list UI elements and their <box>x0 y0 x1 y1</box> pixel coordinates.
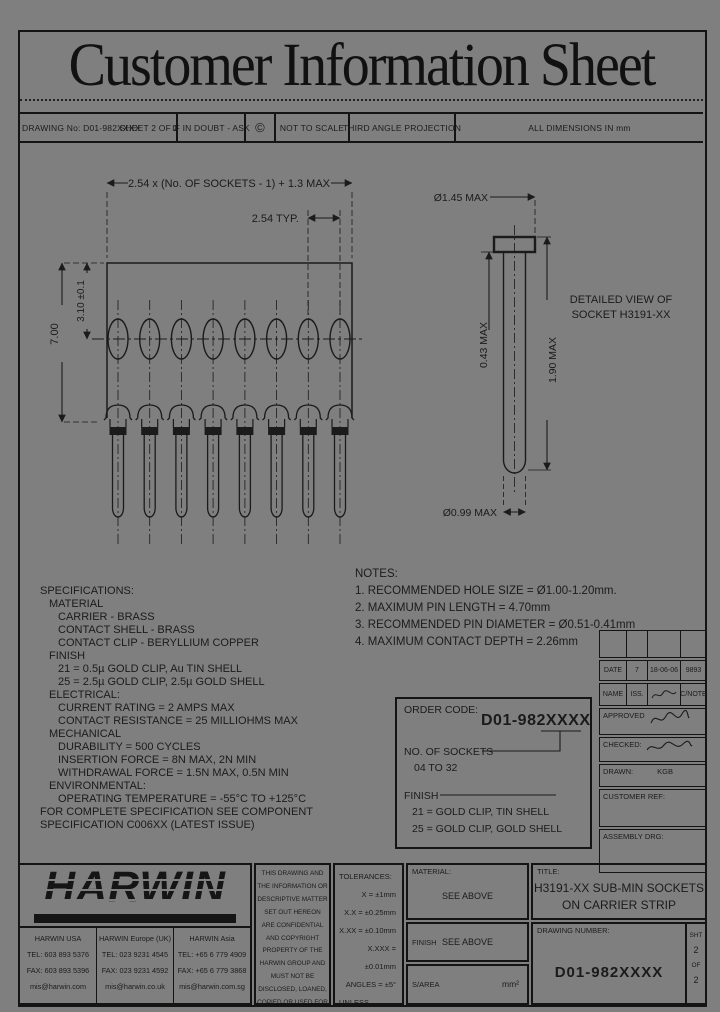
customer-ref-label: CUSTOMER REF: <box>600 790 668 803</box>
spec-line: INSERTION FORCE = 8N MAX, 2N MIN <box>40 754 370 767</box>
surface-area-box: S/AREA mm² <box>406 964 529 1005</box>
carrier-strip-view <box>92 263 362 418</box>
detail-dia-top-label: Ø1.45 MAX <box>434 192 488 204</box>
drawing-title-line2: ON CARRIER STRIP <box>533 898 705 912</box>
tolerance-line: X.XXX = ±0.01mm <box>339 940 398 976</box>
spec-line: CONTACT RESISTANCE = 25 MILLIOHMS MAX <box>40 715 370 728</box>
note-item: 1. RECOMMENDED HOLE SIZE = Ø1.00-1.20mm. <box>355 583 690 600</box>
finish-option: 25 = GOLD CLIP, GOLD SHELL <box>412 823 562 835</box>
tolerance-line: X.XX = ±0.10mm <box>339 922 398 940</box>
title-block: HARWIN HARWIN USA TEL: 603 893 5376 FAX:… <box>18 863 707 1005</box>
sht-label: SHT <box>687 928 705 943</box>
revision-date-row: DATE 7 18-06-06 9893 <box>599 660 707 681</box>
sockets-range: 04 TO 32 <box>414 762 457 774</box>
detail-caption-line1: DETAILED VIEW OF <box>570 294 673 306</box>
revision-empty-row <box>599 630 707 658</box>
drawn-row: DRAWN: KGB <box>599 764 707 787</box>
contact-asia: HARWIN Asia TEL: +65 6 779 4909 FAX: +65… <box>173 928 250 1005</box>
order-code-label: ORDER CODE: <box>404 704 478 716</box>
spec-line: CONTACT CLIP - BERYLLIUM COPPER <box>40 637 370 650</box>
notes-title: NOTES: <box>355 566 690 583</box>
office-email: mis@harwin.com.sg <box>174 979 250 995</box>
note-item: 2. MAXIMUM PIN LENGTH = 4.70mm <box>355 600 690 617</box>
tolerances-title: TOLERANCES: <box>339 868 398 886</box>
approved-label: APPROVED <box>600 709 648 734</box>
sarea-units: mm² <box>502 979 519 989</box>
drawn-label: DRAWN: <box>600 765 636 786</box>
spec-line: CARRIER - BRASS <box>40 611 370 624</box>
detail-caption-line2: SOCKET H3191-XX <box>572 309 672 321</box>
drawing-number-box: DRAWING NUMBER: D01-982XXXX SHT 2 OF 2 <box>531 922 707 1005</box>
change-note-number: 9893 <box>681 661 706 680</box>
spec-line: SPECIFICATION C006XX (LATEST ISSUE) <box>40 819 370 832</box>
issue-number: 7 <box>627 661 648 680</box>
contact-columns: HARWIN USA TEL: 603 893 5376 FAX: 603 89… <box>20 926 250 1005</box>
dim-hole-depth-label: 3.10 ±0.1 <box>76 280 87 322</box>
office-name: HARWIN Europe (UK) <box>97 931 173 947</box>
sht-of: OF <box>687 958 705 973</box>
office-name: HARWIN Asia <box>174 931 250 947</box>
date-value: 18-06-06 <box>648 661 681 680</box>
customer-information-sheet: Customer Information Sheet DRAWING No: D… <box>0 0 720 1012</box>
tolerances-box: TOLERANCES: X = ±1mm X.X = ±0.25mm X.XX … <box>333 863 404 1005</box>
drawing-number-label: DRAWING NUMBER: <box>537 926 610 935</box>
office-tel: TEL: 603 893 5376 <box>20 947 96 963</box>
harwin-logo-box: HARWIN HARWIN USA TEL: 603 893 5376 FAX:… <box>18 863 252 1005</box>
dim-pitch-label: 2.54 TYP. <box>252 213 299 225</box>
sht-total: 2 <box>687 973 705 988</box>
office-tel: TEL: +65 6 779 4909 <box>174 947 250 963</box>
spec-line: OPERATING TEMPERATURE = -55°C TO +125°C <box>40 793 370 806</box>
iss-label: ISS. <box>627 684 648 705</box>
sheet-indicator: SHT 2 OF 2 <box>685 924 705 1003</box>
assembly-drg-label: ASSEMBLY DRG: <box>600 830 667 843</box>
contact-europe: HARWIN Europe (UK) TEL: 023 9231 4545 FA… <box>96 928 173 1005</box>
spec-line: CONTACT SHELL - BRASS <box>40 624 370 637</box>
name-label: NAME <box>600 684 627 705</box>
finish-value: SEE ABOVE <box>408 937 527 947</box>
material-label: MATERIAL: <box>412 867 451 876</box>
tolerance-line: ANGLES = ±5° <box>339 976 398 994</box>
logo-underline-bar <box>34 914 236 923</box>
finish-option: 21 = GOLD CLIP, TIN SHELL <box>412 806 549 818</box>
office-fax: FAX: 603 893 5396 <box>20 963 96 979</box>
cnote-label: C/NOTE <box>681 684 706 705</box>
drawn-by: KGB <box>654 765 676 786</box>
detail-dia-bottom-label: Ø0.99 MAX <box>443 507 497 519</box>
office-tel: TEL: 023 9231 4545 <box>97 947 173 963</box>
spec-line: MECHANICAL <box>40 728 370 741</box>
order-code-value: D01-982XXXX <box>481 712 591 730</box>
customer-ref-row: CUSTOMER REF: <box>599 789 707 827</box>
office-fax: FAX: 023 9231 4592 <box>97 963 173 979</box>
logo-stripe <box>32 889 238 891</box>
sarea-label: S/AREA <box>412 980 440 989</box>
sht-number: 2 <box>687 943 705 958</box>
socket-detail-view <box>481 197 551 512</box>
signature-scribble <box>648 709 690 729</box>
date-label: DATE <box>600 661 627 680</box>
drawing-title-box: TITLE: H3191-XX SUB-MIN SOCKETS ON CARRI… <box>531 863 707 920</box>
order-code-box: ORDER CODE: D01-982XXXX NO. OF SOCKETS 0… <box>395 697 592 849</box>
sockets-label: NO. OF SOCKETS <box>404 746 493 758</box>
spec-line: SPECIFICATIONS: <box>40 585 370 598</box>
checked-row: CHECKED: <box>599 737 707 762</box>
checked-label: CHECKED: <box>600 738 645 761</box>
signature-scribble <box>645 738 693 756</box>
office-email: mis@harwin.com <box>20 979 96 995</box>
spec-line: 25 = 2.5µ GOLD CLIP, 2.5µ GOLD SHELL <box>40 676 370 689</box>
signature-scribble <box>650 688 678 702</box>
confidentiality-disclaimer: THIS DRAWING AND THE INFORMATION OR DESC… <box>254 863 331 1005</box>
contact-usa: HARWIN USA TEL: 603 893 5376 FAX: 603 89… <box>20 928 96 1005</box>
spec-line: DURABILITY = 500 CYCLES <box>40 741 370 754</box>
office-email: mis@harwin.co.uk <box>97 979 173 995</box>
office-fax: FAX: +65 6 779 3868 <box>174 963 250 979</box>
harwin-logo: HARWIN <box>20 863 250 912</box>
finish-box: FINISH SEE ABOVE <box>406 922 529 962</box>
dim-overall-length <box>107 183 352 258</box>
title-label: TITLE: <box>537 867 560 876</box>
tolerance-line: X = ±1mm <box>339 886 398 904</box>
spec-line: CURRENT RATING = 2 AMPS MAX <box>40 702 370 715</box>
spec-line: MATERIAL <box>40 598 370 611</box>
material-value: SEE ABOVE <box>408 891 527 901</box>
drawing-title-line1: H3191-XX SUB-MIN SOCKETS <box>533 881 705 895</box>
drawing-number-value: D01-982XXXX <box>533 964 685 981</box>
tolerance-line: X.X = ±0.25mm <box>339 904 398 922</box>
detail-length-label: 1.90 MAX <box>547 337 559 383</box>
name-signature <box>648 684 681 705</box>
spec-line: 21 = 0.5µ GOLD CLIP, Au TIN SHELL <box>40 663 370 676</box>
revision-name-row: NAME ISS. C/NOTE <box>599 683 707 706</box>
logo-stripe <box>32 879 238 881</box>
dim-strip-height-label: 7.00 <box>49 323 61 344</box>
tolerance-line: UNLESS STATED <box>339 994 398 1012</box>
office-name: HARWIN USA <box>20 931 96 947</box>
detail-thickness-label: 0.43 MAX <box>478 322 490 368</box>
material-box: MATERIAL: SEE ABOVE <box>406 863 529 920</box>
specifications-block: SPECIFICATIONS: MATERIAL CARRIER - BRASS… <box>40 585 370 832</box>
approved-row: APPROVED <box>599 708 707 735</box>
spec-line: FOR COMPLETE SPECIFICATION SEE COMPONENT <box>40 806 370 819</box>
logo-stripe <box>32 899 238 901</box>
finish-label: FINISH <box>404 790 438 802</box>
spec-line: ENVIRONMENTAL: <box>40 780 370 793</box>
dim-overall-label: 2.54 x (No. OF SOCKETS - 1) + 1.3 MAX <box>128 178 331 190</box>
revision-table: DATE 7 18-06-06 9893 NAME ISS. C/NOTE AP… <box>599 630 707 873</box>
spec-line: FINISH <box>40 650 370 663</box>
spec-line: ELECTRICAL: <box>40 689 370 702</box>
spec-line: WITHDRAWAL FORCE = 1.5N MAX, 0.5N MIN <box>40 767 370 780</box>
